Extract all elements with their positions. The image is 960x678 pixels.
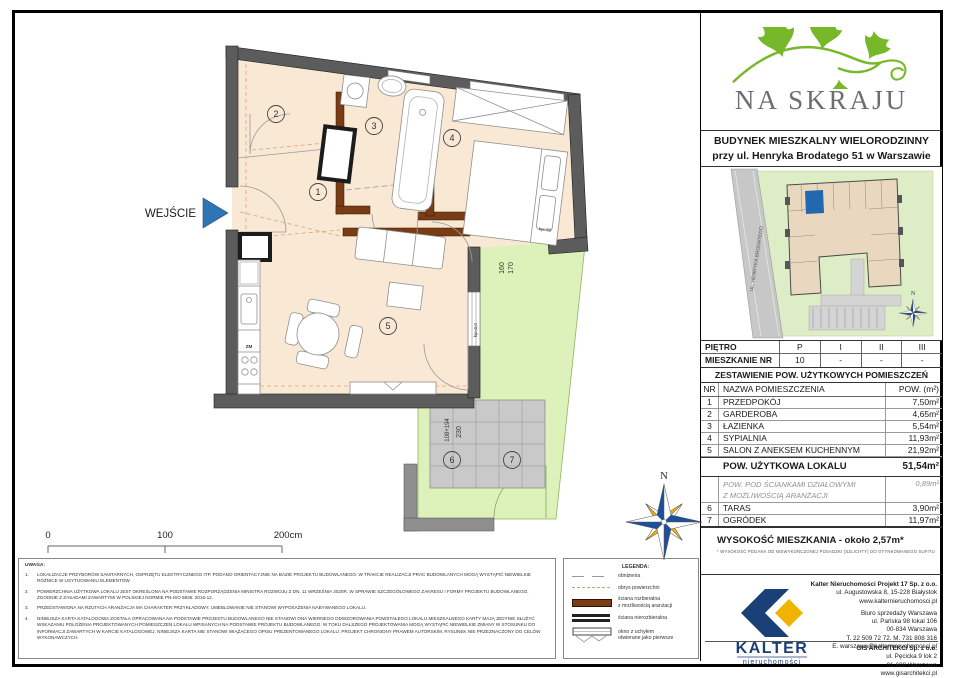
apartment-height-block: WYSOKOŚĆ MIESZKANIA - około 2,57m* * WYS… <box>701 528 942 574</box>
notes-title: UWAGA: <box>25 563 545 570</box>
floor-row: PIĘTRO P I II III <box>701 341 942 354</box>
dim-160: 160 <box>499 262 506 274</box>
room-label-1: 1 <box>315 187 320 197</box>
apartment-label: MIESZKANIE NR <box>701 354 779 367</box>
floor-col-p: P <box>779 341 820 354</box>
room-row: 1PRZEDPOKÓJ7,50m² <box>701 397 942 409</box>
developer-block: KALTER nieruchomości Kalter Nieruchomośc… <box>701 574 942 661</box>
total-area-row: POW. UŻYTKOWA LOKALU 51,54m² <box>701 457 942 477</box>
room-row: 3ŁAZIENKA5,54m² <box>701 421 942 433</box>
notes-box: UWAGA: 1. LOKALIZACJE PRZYBORÓW SANITARN… <box>18 558 556 659</box>
dim-108-194: 108+194 <box>445 418 451 442</box>
scale-bar: 0 100 200cm <box>15 526 315 560</box>
fixed-wall-icon <box>572 614 610 622</box>
room-label-4: 4 <box>449 133 454 143</box>
legend-item: obrys powierzchni <box>572 585 695 592</box>
dim-170: 170 <box>508 262 515 274</box>
room-row: 7OGRÓDEK11,97m² <box>701 515 942 527</box>
floor-col-1: I <box>820 341 861 354</box>
note-item: 2. POWIERZCHNIA UŻYTKOWA LOKALU JEST OKR… <box>25 589 545 602</box>
note-item: 3. PRZEDSTAWIONA NA RZUTACH ARANŻACJA MA… <box>25 605 545 611</box>
room-label-5: 5 <box>385 321 390 331</box>
note-number: 4. <box>25 616 33 642</box>
ivy-logo-icon <box>727 27 917 89</box>
entrance-arrow-icon <box>203 198 228 228</box>
brand-name: NA SKRAJU <box>735 85 908 116</box>
legend-label: obrys powierzchni <box>618 585 695 592</box>
apartment-number: 10 <box>779 354 820 367</box>
rooms-table-title: ZESTAWIENIE POW. UŻYTKOWYCH POMIESZCZEŃ <box>701 368 942 383</box>
tilt-window-icon <box>572 627 612 643</box>
building-title-line1: BUDYNEK MIESZKALNY WIELORODZINNY <box>714 134 929 148</box>
apartment-row: MIESZKANIE NR 10 - - - <box>701 354 942 367</box>
room-row: 4SYPIALNIA11,93m² <box>701 433 942 445</box>
note-item: 1. LOKALIZACJE PRZYBORÓW SANITARNYCH, OS… <box>25 572 545 585</box>
building-title: BUDYNEK MIESZKALNY WIELORODZINNY przy ul… <box>701 131 942 167</box>
site-compass-n: N <box>911 291 916 297</box>
note-item: 4. NINIEJSZA KARTA KATALOGOWA ZOSTAŁA OP… <box>25 616 545 642</box>
floor-table: PIĘTRO P I II III MIESZKANIE NR 10 - - - <box>701 341 942 368</box>
note-text: PRZEDSTAWIONA NA RZUTACH ARANŻACJA MA CH… <box>37 605 366 611</box>
total-area-value: 51,54m² <box>882 458 942 476</box>
legend-item: obniżenia <box>572 573 695 580</box>
legend-label: obniżenia <box>618 573 695 580</box>
surface-outline-icon <box>572 587 610 588</box>
terrace-area <box>430 400 545 488</box>
legend-item: okno z uchyłem otwierane jako pierwsze <box>572 627 695 643</box>
room-row: 2GARDEROBA4,65m² <box>701 409 942 421</box>
note-number: 2. <box>25 589 33 602</box>
partition-label: POW. POD ŚCIANKAMI DZIAŁOWYMI Z MOŻLIWOŚ… <box>719 477 886 502</box>
floor-col-3: III <box>901 341 942 354</box>
lowering-line-icon <box>572 576 610 577</box>
floor-plan: 1 2 3 4 5 6 7 160 170 108+194 230 hp=60 … <box>0 0 710 560</box>
scale-100: 100 <box>157 530 173 541</box>
height-label: WYSOKOŚĆ MIESZKANIA - około 2,57m* <box>717 535 938 546</box>
note-text: POWIERZCHNIA UŻYTKOWA LOKALU JEST OKREŚL… <box>37 589 545 602</box>
legend-label: ściana nierozbieralna <box>618 615 695 622</box>
floor-col-2: II <box>861 341 902 354</box>
kalter-website: www.kalternieruchomosci.pl <box>787 598 937 606</box>
room-row: 5SALON Z ANEKSEM KUCHENNYM21,92m² <box>701 445 942 457</box>
total-area-label: POW. UŻYTKOWA LOKALU <box>701 458 882 476</box>
site-plan: UL. HENRYKA BRODATEGO <box>701 167 942 341</box>
note-text: NINIEJSZA KARTA KATALOGOWA ZOSTAŁA OPRAC… <box>37 616 545 642</box>
entrance-marker: WEJŚCIE <box>145 198 228 228</box>
dishwasher-label: ZM <box>246 344 253 349</box>
room-row: 6TARAS3,90m² <box>701 503 942 515</box>
room-label-3: 3 <box>371 121 376 131</box>
kalter-company-name: Kalter Nieruchomości Projekt 17 Sp. z o.… <box>787 581 937 589</box>
architect-website: www.gisarchitekci.pl <box>787 670 937 678</box>
scale-200: 200cm <box>274 530 303 541</box>
legend-label: okno z uchyłem otwierane jako pierwsze <box>618 629 695 642</box>
compass-rose-icon: N <box>624 466 704 562</box>
note-text: LOKALIZACJE PRZYBORÓW SANITARNYCH, OSPRZ… <box>37 572 545 585</box>
scale-0: 0 <box>45 530 50 541</box>
legend-item: ściana nierozbieralna <box>572 614 695 622</box>
height-footnote: * WYSOKOŚĆ PODANA OD NIEWYKOŃCZONEJ POSA… <box>717 549 938 554</box>
rooms-header: NR NAZWA POMIESZCZENIA POW. (m²) <box>701 383 942 397</box>
legend-box: LEGENDA: obniżenia obrys powierzchni ści… <box>563 558 699 659</box>
dim-hp00: hp=0,0 <box>473 323 478 337</box>
contact-divider <box>705 641 938 642</box>
building-title-line2: przy ul. Henryka Brodatego 51 w Warszawi… <box>712 149 930 163</box>
info-panel: NA SKRAJU BUDYNEK MIESZKALNY WIELORODZIN… <box>701 13 942 661</box>
legend-item: ściana rozbieralna z możliwością aranżac… <box>572 596 695 609</box>
partition-area-row: POW. POD ŚCIANKAMI DZIAŁOWYMI Z MOŻLIWOŚ… <box>701 477 942 503</box>
partition-value: 0,89m² <box>886 477 942 502</box>
rooms-table: NR NAZWA POMIESZCZENIA POW. (m²) 1PRZEDP… <box>701 383 942 528</box>
brand-logo: NA SKRAJU <box>701 13 942 131</box>
removable-wall-icon <box>572 599 612 607</box>
catalog-sheet: 1 2 3 4 5 6 7 160 170 108+194 230 hp=60 … <box>0 0 960 678</box>
room-label-7: 7 <box>509 455 514 465</box>
legend-label: ściana rozbieralna z możliwością aranżac… <box>618 596 695 609</box>
room-label-6: 6 <box>449 455 454 465</box>
site-unit-highlight <box>805 190 824 214</box>
architect-name: GIS ARCHITEKCI Sp. z o.o. <box>787 645 937 653</box>
dim-230: 230 <box>456 426 463 438</box>
entrance-label: WEJŚCIE <box>145 207 196 220</box>
legend-title: LEGENDA: <box>622 564 695 570</box>
floor-label: PIĘTRO <box>701 341 779 354</box>
architect-contact: GIS ARCHITEKCI Sp. z o.o. ul. Pęcicka 9 … <box>787 645 937 678</box>
note-number: 1. <box>25 572 33 585</box>
room-label-2: 2 <box>273 109 278 119</box>
compass-n-label: N <box>660 470 668 482</box>
note-number: 3. <box>25 605 33 611</box>
